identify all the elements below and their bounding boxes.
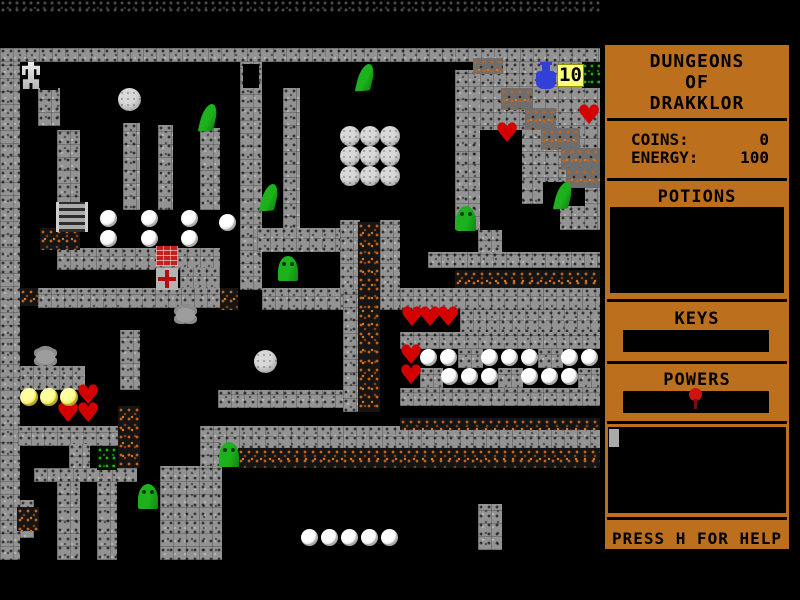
wall-block [578, 368, 600, 388]
gray-ball-sprite [360, 146, 380, 166]
keys-inventory-box [623, 330, 769, 352]
pearl-pickup-sprite [141, 210, 158, 227]
pearl-pickup-sprite [581, 349, 598, 366]
divider [607, 361, 787, 364]
power-pin-icon [689, 388, 702, 401]
gray-ball-sprite [380, 166, 400, 186]
wall-block [458, 349, 483, 368]
dirt-wall-patch [541, 128, 580, 150]
green-dirt-patch [582, 62, 600, 88]
gray-ball-sprite [380, 126, 400, 146]
gray-ball-sprite [340, 166, 360, 186]
wall-block [380, 220, 400, 290]
heart-pickup-sprite [56, 404, 78, 424]
wall-block [0, 62, 20, 560]
gold-pearl-pickup-sprite [60, 388, 78, 406]
pearl-pickup-sprite [561, 349, 578, 366]
energy-label: ENERGY: [631, 148, 698, 167]
cross-block-sprite [156, 268, 178, 290]
pearl-pickup-sprite [481, 349, 498, 366]
wall-block [180, 268, 220, 290]
wall-block [158, 125, 173, 210]
pearl-pickup-sprite [440, 349, 457, 366]
pearl-pickup-sprite [100, 210, 117, 227]
gold-pearl-pickup-sprite [20, 388, 38, 406]
heart-pickup-sprite [577, 106, 599, 126]
pearl-pickup-sprite [361, 529, 378, 546]
game-title-line-2: OF [605, 72, 789, 93]
wall-block [69, 444, 90, 470]
player-robot-sprite [22, 62, 40, 89]
pearl-pickup-sprite [441, 368, 458, 385]
door-gap [243, 64, 259, 88]
brick-block-sprite [156, 246, 178, 266]
wall-block [400, 388, 600, 406]
potion-flask-sprite [536, 71, 556, 89]
wall-block [34, 468, 137, 482]
pearl-pickup-sprite [461, 368, 478, 385]
wall-block [478, 504, 502, 550]
wall-block [340, 220, 360, 290]
wall-block [57, 482, 80, 560]
pearl-pickup-sprite [141, 230, 158, 247]
game-title-line-3: DRAKKLOR [605, 93, 789, 114]
dirt-floor-patch [358, 222, 380, 412]
wall-block [420, 368, 443, 388]
rubble-row [0, 0, 600, 13]
gray-ball-sprite [118, 88, 141, 111]
gray-ball-sprite [340, 146, 360, 166]
heart-pickup-sprite [495, 124, 517, 144]
heart-pickup-sprite [76, 404, 98, 424]
wall-block [218, 390, 343, 408]
dirt-wall-patch [473, 58, 503, 74]
dirt-floor-patch [455, 270, 600, 288]
dirt-floor-patch [17, 507, 39, 531]
gold-pearl-pickup-sprite [40, 388, 58, 406]
status-sidebar: DUNGEONS OF DRAKKLOR COINS: 0 ENERGY: 10… [602, 42, 792, 552]
coins-row: COINS: 0 [631, 130, 769, 149]
wall-block [38, 288, 220, 308]
slime-monster-sprite [278, 256, 298, 281]
pearl-pickup-sprite [321, 529, 338, 546]
wall-block [460, 310, 600, 334]
dirt-floor-patch [118, 406, 140, 468]
gray-ball-sprite [254, 350, 277, 373]
heart-pickup-sprite [436, 308, 458, 328]
pearl-pickup-sprite [561, 368, 578, 385]
pearl-pickup-sprite [481, 368, 498, 385]
coins-label: COINS: [631, 130, 689, 149]
slime-monster-sprite [219, 442, 239, 467]
dirt-floor-patch [20, 288, 38, 306]
dungeon-maze-viewport[interactable]: 10 [0, 0, 600, 600]
bug-monster-sprite [36, 350, 55, 364]
pearl-pickup-sprite [521, 349, 538, 366]
pearl-pickup-sprite [301, 529, 318, 546]
dirt-floor-patch [400, 418, 600, 430]
energy-row: ENERGY: 100 [631, 148, 769, 167]
divider [607, 118, 787, 121]
help-hint-text: PRESS H FOR HELP [605, 529, 789, 548]
coins-value: 0 [759, 130, 769, 149]
wall-block [38, 88, 60, 126]
door-gap [40, 62, 58, 90]
energy-value: 100 [740, 148, 769, 167]
wall-block [57, 130, 80, 210]
pearl-pickup-sprite [381, 529, 398, 546]
keys-section-label: KEYS [605, 309, 789, 329]
pearl-pickup-sprite [501, 349, 518, 366]
dirt-wall-patch [566, 168, 600, 188]
dirt-wall-patch [561, 148, 600, 170]
pearl-pickup-sprite [420, 349, 437, 366]
heart-pickup-sprite [399, 366, 421, 386]
wall-block [97, 482, 117, 560]
slime-monster-sprite [138, 484, 158, 509]
wall-block [120, 330, 140, 390]
wall-block [160, 466, 222, 560]
wall-block [400, 332, 600, 349]
wall-block [57, 248, 220, 270]
pearl-pickup-sprite [521, 368, 538, 385]
slime-monster-sprite [456, 206, 476, 231]
pearl-pickup-sprite [181, 210, 198, 227]
potions-section-label: POTIONS [605, 187, 789, 207]
wall-block [123, 123, 140, 210]
wall-block [478, 228, 502, 254]
dirt-floor-patch [220, 288, 238, 310]
slime-monster-sprite [355, 64, 377, 92]
wall-block [240, 62, 262, 290]
message-cursor [609, 429, 619, 447]
wall-block [538, 349, 563, 368]
wall-block [428, 252, 600, 268]
wall-block [380, 288, 400, 310]
wall-block [200, 128, 220, 210]
green-dirt-patch [97, 446, 117, 470]
game-title-line-1: DUNGEONS [605, 51, 789, 72]
wall-block [498, 368, 523, 388]
wall-block [262, 288, 355, 310]
gray-ball-sprite [360, 126, 380, 146]
potion-count-badge: 10 [557, 64, 584, 87]
divider [607, 299, 787, 302]
game-screen: 10 DUNGEONS OF DRAKKLOR COINS: 0 ENERGY:… [0, 0, 800, 600]
dirt-wall-patch [525, 108, 556, 130]
divider [607, 517, 787, 520]
pearl-pickup-sprite [219, 214, 236, 231]
dirt-wall-patch [501, 88, 533, 110]
dirt-floor-patch [238, 448, 600, 468]
pearl-pickup-sprite [541, 368, 558, 385]
potions-inventory-box [610, 207, 784, 293]
wall-block [0, 48, 600, 62]
divider [607, 421, 787, 424]
powers-section-label: POWERS [605, 370, 789, 390]
pearl-pickup-sprite [181, 230, 198, 247]
gray-ball-sprite [380, 146, 400, 166]
wall-block [18, 426, 120, 446]
wall-block [283, 88, 300, 230]
gray-ball-sprite [340, 126, 360, 146]
gray-ball-sprite [360, 166, 380, 186]
bug-monster-sprite [176, 308, 195, 322]
door-gap [502, 204, 560, 230]
pearl-pickup-sprite [100, 230, 117, 247]
powers-inventory-box [623, 391, 769, 413]
message-box [608, 427, 786, 513]
pearl-pickup-sprite [341, 529, 358, 546]
divider [607, 178, 787, 181]
ladder-sprite [56, 202, 88, 232]
